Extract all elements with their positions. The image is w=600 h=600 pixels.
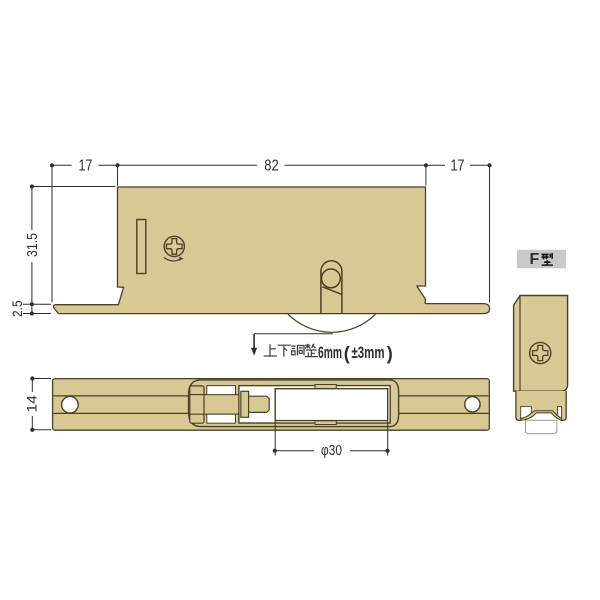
svg-text:14: 14: [24, 395, 40, 413]
svg-text:6mm: 6mm: [318, 343, 342, 362]
svg-text:±3mm: ±3mm: [352, 343, 385, 362]
svg-text:): ): [387, 343, 393, 363]
svg-text:F: F: [530, 251, 540, 268]
svg-text:82: 82: [264, 158, 279, 175]
svg-text:17: 17: [451, 158, 465, 175]
svg-text:φ30: φ30: [321, 443, 342, 459]
svg-text:31.5: 31.5: [24, 233, 41, 257]
svg-text:(: (: [344, 343, 350, 363]
svg-text:2.5: 2.5: [9, 300, 25, 317]
svg-text:17: 17: [79, 158, 93, 175]
